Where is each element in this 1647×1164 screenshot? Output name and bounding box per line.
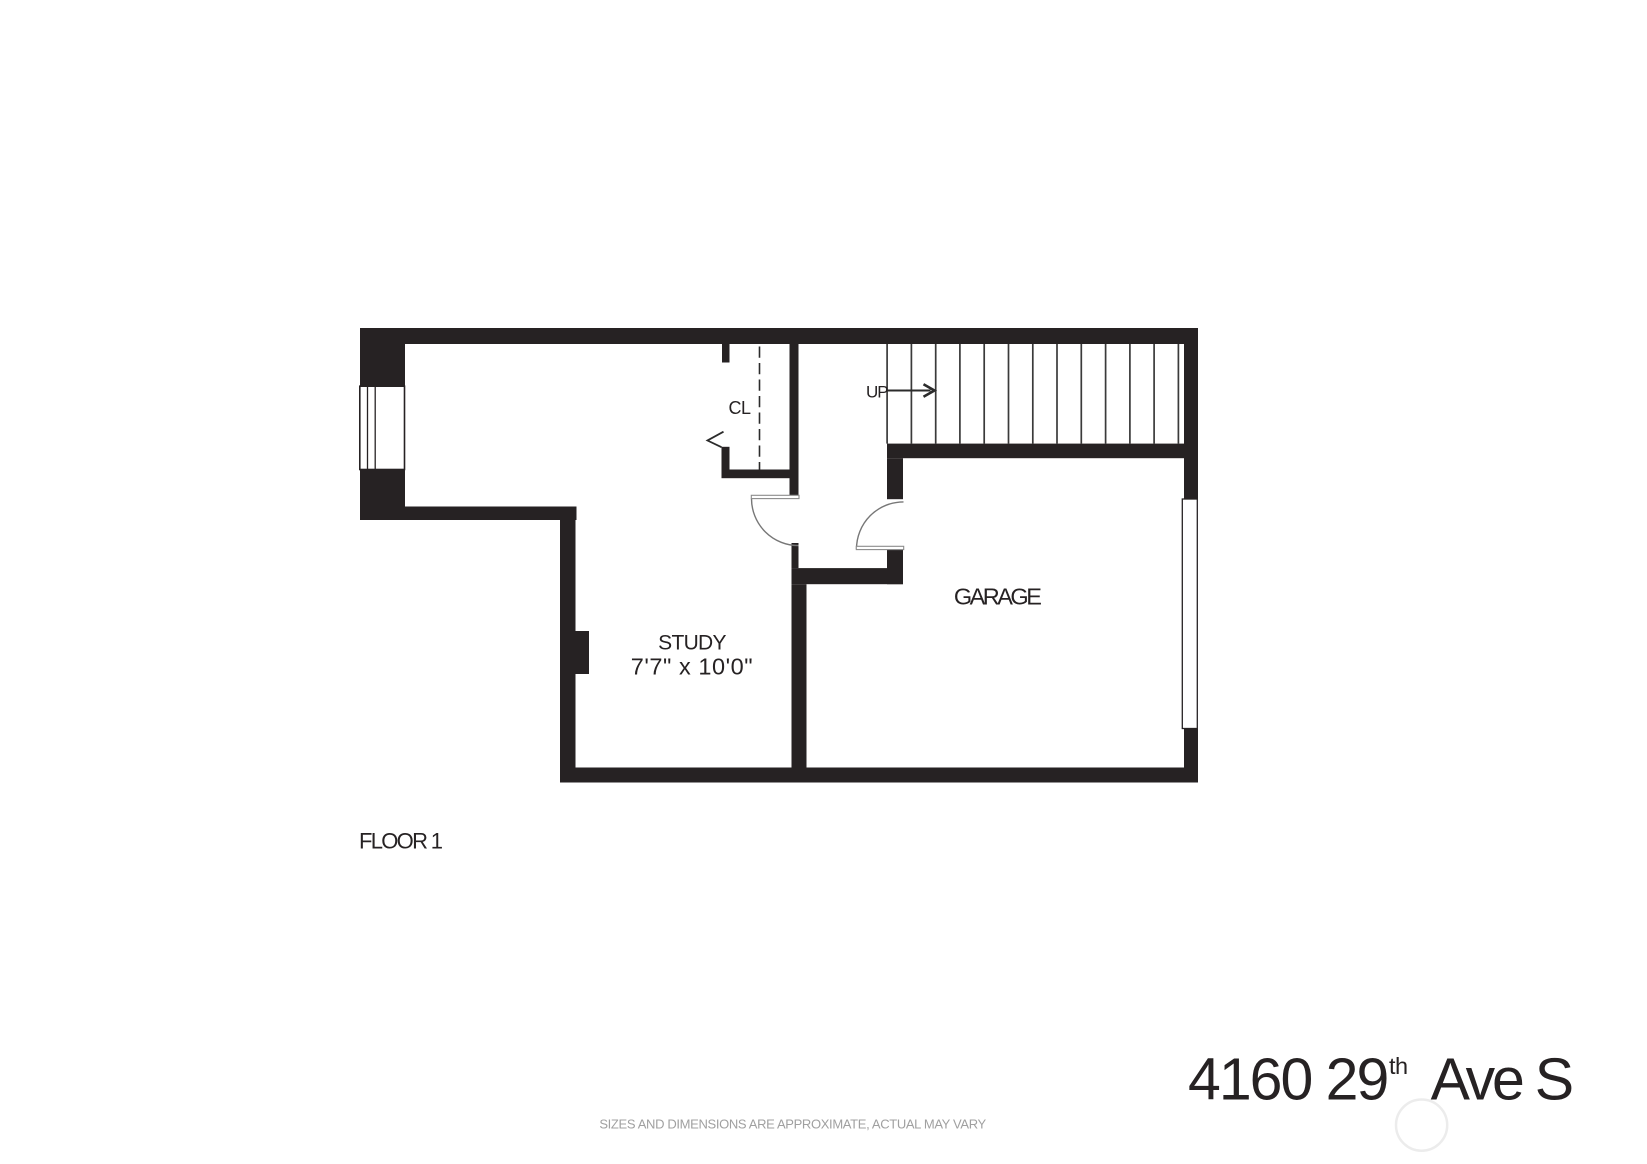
- svg-text:SIZES AND DIMENSIONS ARE APPRO: SIZES AND DIMENSIONS ARE APPROXIMATE, AC…: [599, 1117, 986, 1132]
- svg-text:UP: UP: [866, 383, 888, 402]
- svg-text:CL: CL: [729, 398, 751, 418]
- svg-text:Ave S: Ave S: [1431, 1047, 1572, 1113]
- svg-text:7'7" x 10'0": 7'7" x 10'0": [631, 654, 753, 680]
- svg-text:th: th: [1389, 1053, 1408, 1079]
- svg-text:STUDY: STUDY: [658, 632, 726, 655]
- svg-text:GARAGE: GARAGE: [954, 584, 1041, 610]
- svg-text:FLOOR 1: FLOOR 1: [359, 828, 443, 853]
- svg-text:4160 29: 4160 29: [1188, 1047, 1387, 1113]
